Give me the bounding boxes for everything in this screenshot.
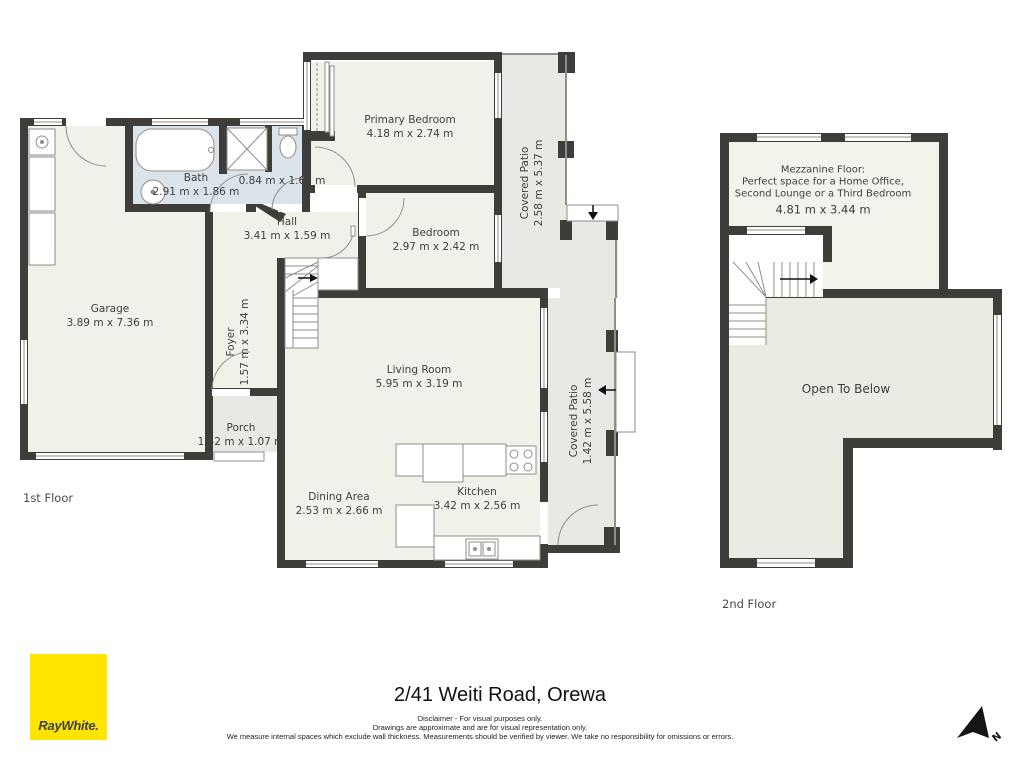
hall-cupboard <box>318 258 358 290</box>
garage-counter <box>29 213 55 265</box>
landing <box>729 235 823 262</box>
entry-step <box>616 352 635 432</box>
north-label: N <box>990 731 1003 745</box>
disclaimer-line: We measure internal spaces which exclude… <box>0 732 960 741</box>
garage-counter <box>29 157 55 211</box>
room-label-primary-bedroom: Primary Bedroom 4.18 m x 2.74 m <box>364 113 455 141</box>
porch-step <box>214 452 264 461</box>
toilet <box>280 136 296 158</box>
room-label-hall: Hall 3.41 m x 1.59 m <box>244 215 331 243</box>
room-label-mezzanine: Mezzanine Floor: Perfect space for a Hom… <box>735 165 911 216</box>
floorplan-page: Garage 3.89 m x 7.36 m Bath 2.91 m x 1.8… <box>0 0 1024 768</box>
raywhite-logo: RayWhite. <box>30 654 107 740</box>
second-floor-label: 2nd Floor <box>722 597 776 611</box>
raywhite-wordmark: RayWhite. <box>38 718 98 740</box>
room-label-open-to-below: Open To Below <box>802 382 890 396</box>
room-label-kitchen: Kitchen 3.42 m x 2.56 m <box>434 485 521 513</box>
room-label-covered-patio-right: Covered Patio 1.42 m x 5.58 m <box>567 378 595 465</box>
room-label-bath: Bath 2.91 m x 1.86 m <box>153 171 240 199</box>
room-label-wc: 0.84 m x 1.67 m <box>239 174 326 188</box>
kitchen-island <box>396 505 434 547</box>
stairs-first-floor <box>285 258 318 348</box>
bathtub <box>136 129 214 171</box>
toilet-tank <box>279 128 297 135</box>
room-label-porch: Porch 1.52 m x 1.07 m <box>198 421 285 449</box>
room-label-garage: Garage 3.89 m x 7.36 m <box>67 302 154 330</box>
room-label-covered-patio-top: Covered Patio 2.58 m x 5.37 m <box>518 140 546 227</box>
garage-fixtures <box>29 129 55 265</box>
open-to-below-area <box>729 298 993 558</box>
disclaimer-text: Disclaimer - For visual purposes only. D… <box>0 714 960 741</box>
disclaimer-line: Disclaimer - For visual purposes only. <box>0 714 960 723</box>
compass-north-label: N <box>950 698 1010 750</box>
property-address: 2/41 Weiti Road, Orewa <box>0 684 1000 707</box>
first-floor-label: 1st Floor <box>23 491 73 505</box>
room-label-dining-area: Dining Area 2.53 m x 2.66 m <box>296 490 383 518</box>
disclaimer-line: Drawings are approximate and are for vis… <box>0 723 960 732</box>
room-label-bedroom: Bedroom 2.97 m x 2.42 m <box>393 226 480 254</box>
room-label-living-room: Living Room 5.95 m x 3.19 m <box>376 363 463 391</box>
room-label-foyer: Foyer 1.57 m x 3.34 m <box>224 299 252 386</box>
